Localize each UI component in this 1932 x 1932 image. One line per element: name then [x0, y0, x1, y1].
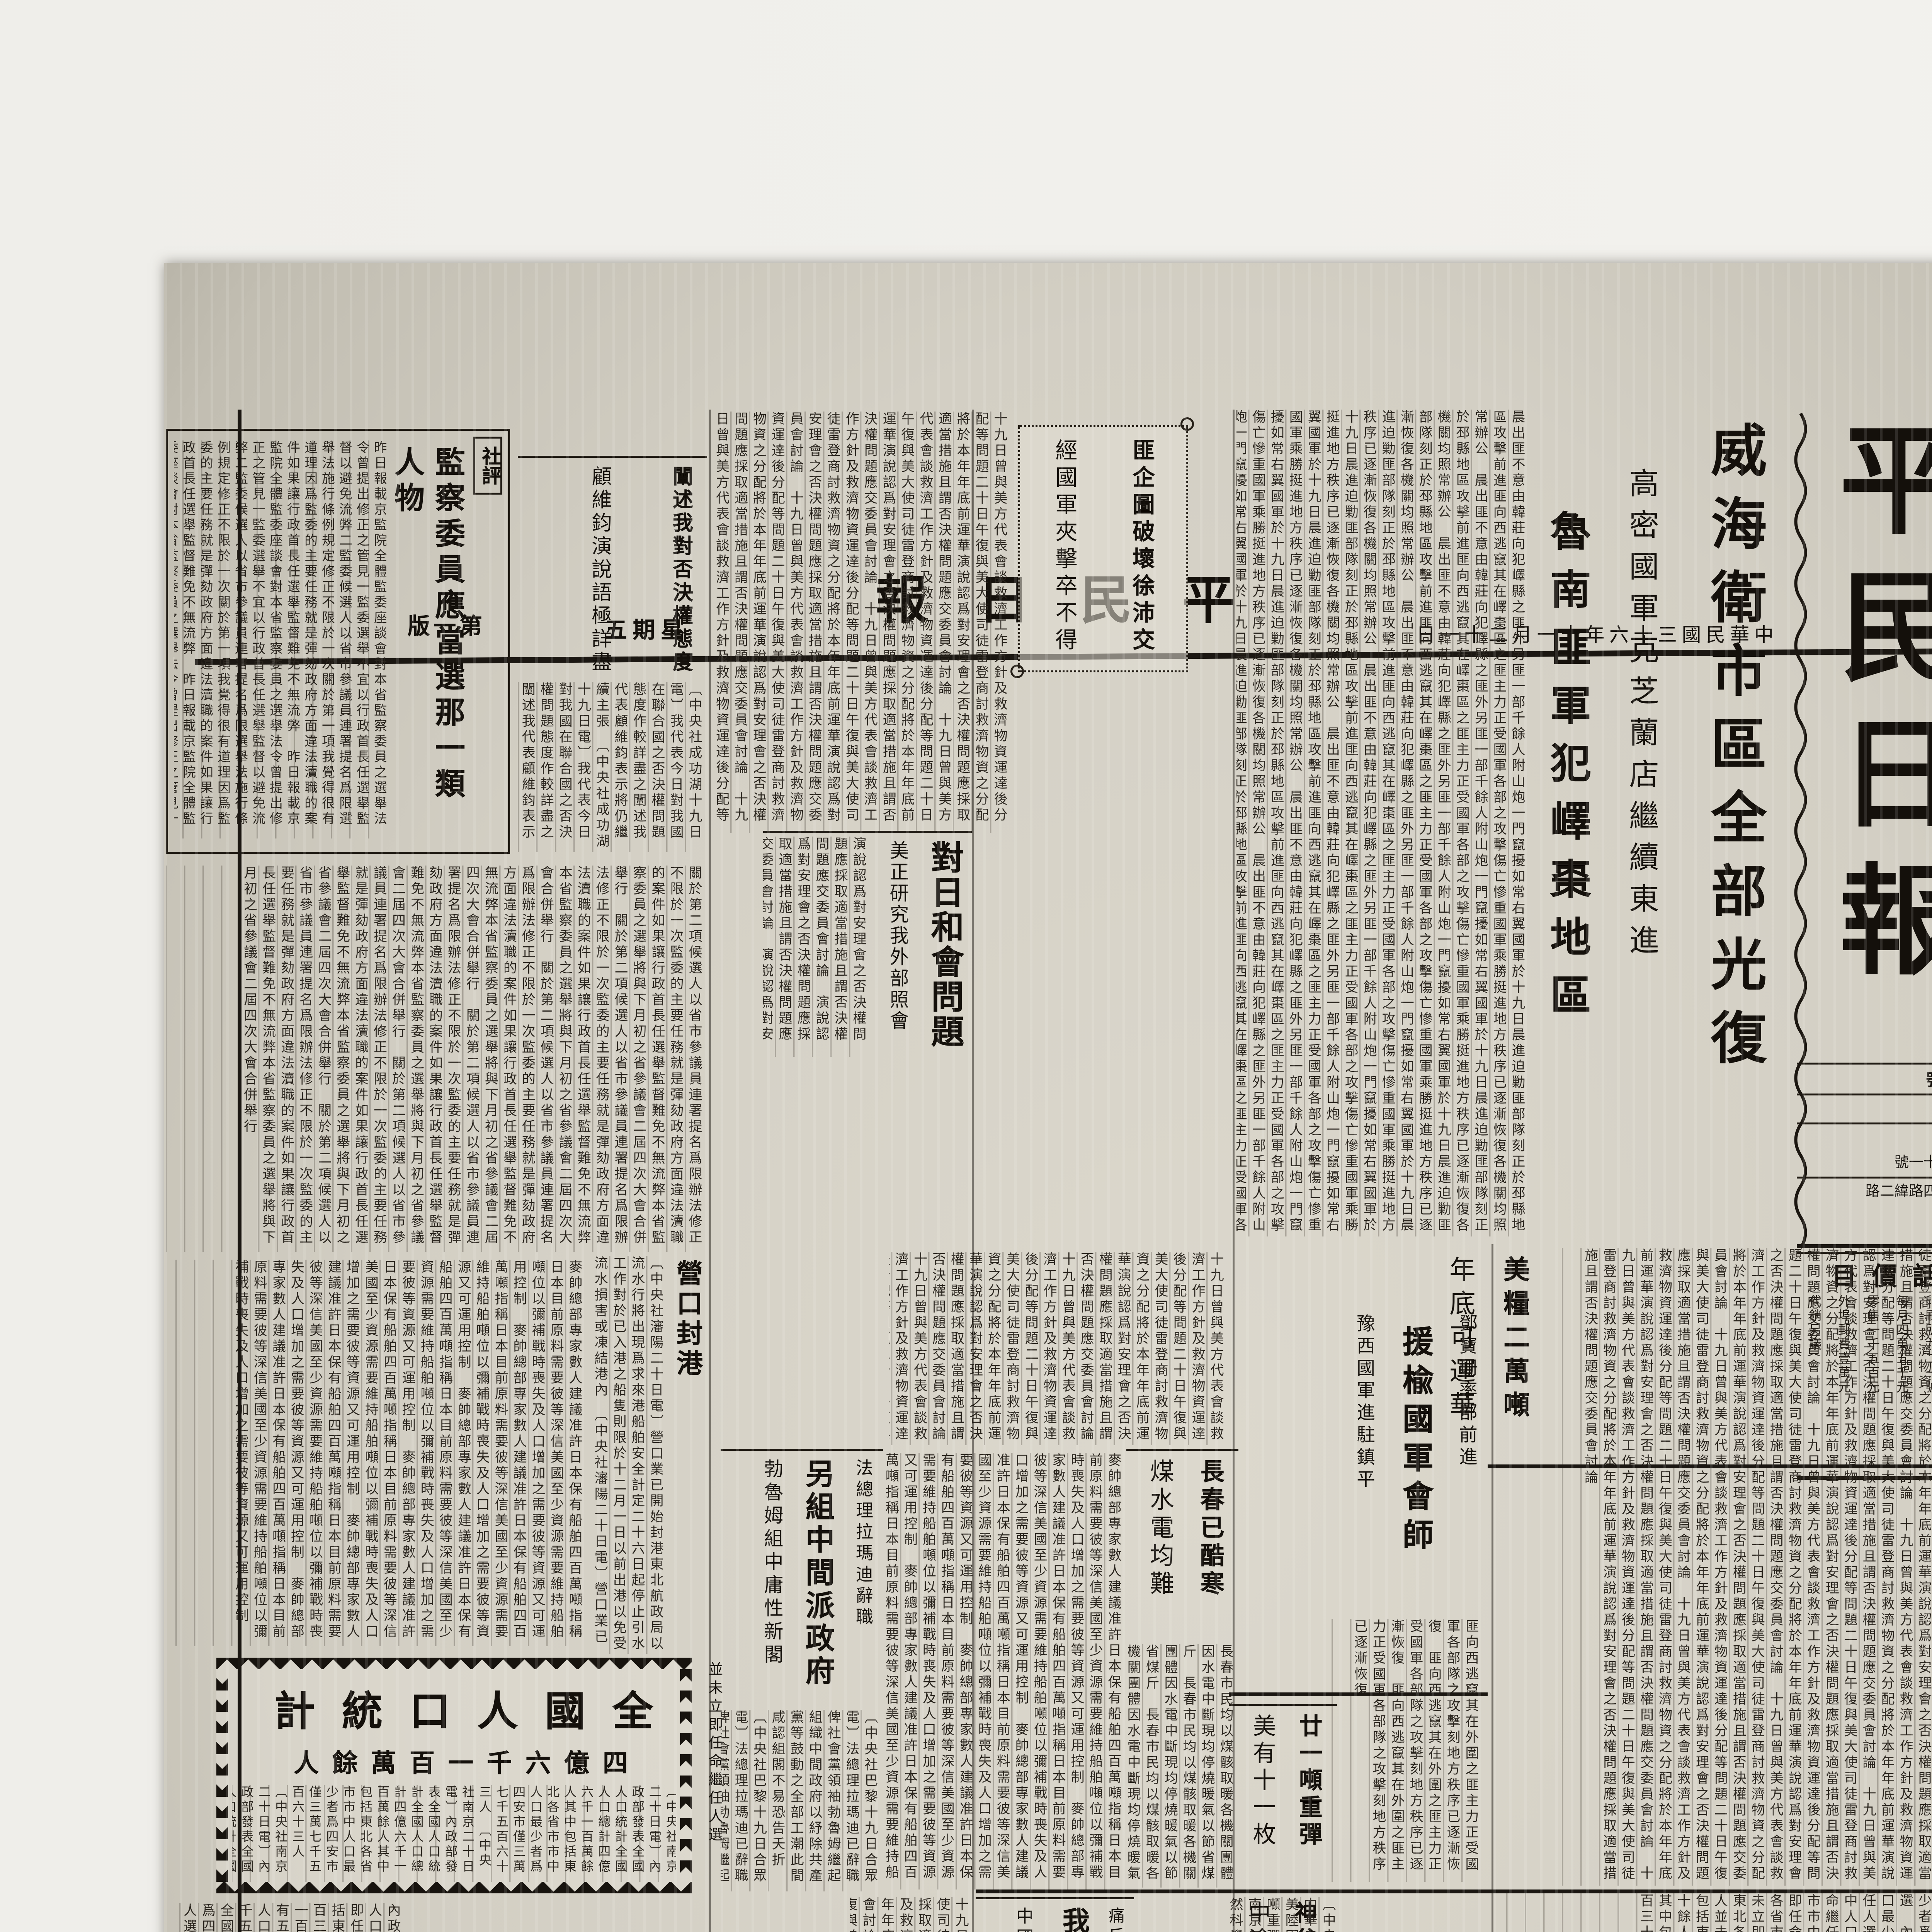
- deng-sideheadline-2: 豫西國軍進駐鎮平: [1345, 1314, 1379, 1604]
- france-subheadline: 勃魯姆組中庸性新閣: [752, 1459, 786, 1706]
- france-headline: 另組中間派政府: [790, 1459, 844, 1706]
- newspaper-page: 第一版 星期五 平民日報 中華民國三十六年十一月二十一日 平民日報 第五七八三號…: [164, 263, 1932, 1932]
- census-box: 全國人口統計 四億六千一百萬餘人 〔中央社南京二十日電〕內政部發表全國人口統計全…: [216, 1658, 692, 1893]
- gu-speech-headline: 我代表顧鈞發表演說: [1045, 1907, 1099, 1932]
- section-rule: [1488, 1464, 1932, 1468]
- bomb-headline-2: 美有十一枚: [1244, 1714, 1283, 1884]
- gu-veto-article: 闡述我對否決權態度 顧維鈞演說語極詳盡 〔中央社成功湖十九日電〕我代表今日對我國…: [518, 456, 707, 854]
- france-body: 〔中央社巴黎十九日合眾電〕法總理拉瑪迪已辭職俾社會黨領袖勃魯姆繼起組織中間政府以…: [721, 1710, 879, 1891]
- france-sideheadline: 法總理拉瑪迪辭職: [848, 1459, 879, 1706]
- bomb-headline-1: 廿一噸重彈: [1291, 1714, 1329, 1884]
- japan-peace-body: 演說認爲對安理會之否決權問題應採取適當措施且謂否決權問題應交委員會討論 演說認爲…: [763, 837, 867, 1057]
- census-zigzag-bottom: [216, 1882, 692, 1893]
- column-rule: [1233, 410, 1235, 1932]
- article-body-right-lower: 內政部發表全國人口統計全國人口總計四億六千一百萬餘人其中包括東北各省市市中人口最…: [1497, 1893, 1932, 1932]
- lead-headline: 威海衛市區全部光復: [1673, 421, 1793, 1233]
- publication-info-box: 第五七八三號 發行人孫進 內政部登記證 京警魯字第三十一號 社址：濟南經四路緯二…: [1797, 1063, 1932, 1248]
- section-rule: [1229, 1692, 1488, 1696]
- publisher: 發行人孫進: [1797, 1095, 1932, 1124]
- priest-headline-1: 神父赴南京: [1285, 1901, 1323, 1932]
- gu-veto-body: 〔中央社成功湖十九日電〕我代表今日對我國在聯合國之否決權問題態度作較詳盡之闡述我…: [518, 682, 703, 852]
- content-left-border: [238, 410, 241, 1932]
- deng-sideheadline-1: 鄧寶珊率部前進: [1449, 1314, 1480, 1604]
- column-rule: [1492, 1244, 1493, 1932]
- priest-article: 神父赴南京 中途罹匪俘 〔中央社南京二十日電〕據自南通來京人士稱在興隆鎮一帶近日…: [1227, 1897, 1331, 1932]
- editorial-headline: 監察委員應當選那一類人物: [386, 446, 468, 837]
- article-body-center: 十九日曾與美方代表會談救濟工作方針及救濟物資運達後分配等問題二十日午復與美大使司…: [889, 1252, 1225, 1445]
- article-body-mid-upper: 十九日曾與美方代表會談救濟工作方針及救濟物資運達後分配等問題二十日午復與美大使司…: [715, 412, 1009, 833]
- article-body-left-bottom: 內政部發表全國人口統計全國人口總計四億六千一百萬餘人其中包括東北各省市市中人口最…: [166, 1903, 402, 1932]
- issue-number: 第五七八三號: [1797, 1065, 1932, 1095]
- census-zigzag-top: [216, 1658, 692, 1669]
- census-headline: 全國人口統計: [274, 1681, 680, 1739]
- gu-veto-headline: 闡述我對否決權態度: [626, 466, 699, 674]
- lead-subheadline-2: 魯南匪軍犯嶧棗地區: [1530, 510, 1607, 1233]
- census-zigzag-right: [680, 1669, 692, 1882]
- deng-article: 鄧寶珊率部前進 援楡國軍會師 豫西國軍進駐鎮平 匪向西逃竄其在外圍之匪主力正受國…: [1318, 1306, 1484, 1886]
- gu-speech-sideheadline: 痛斥烏克蘭代表對我批評: [1103, 1907, 1130, 1932]
- dispatch-line1: 匪企圖破壞徐沛交通: [1109, 439, 1175, 663]
- dispatch-box: 匪企圖破壞徐沛交通 經國軍夾擊卒不得逞: [1018, 425, 1188, 672]
- editorial-label: 社評: [473, 437, 502, 495]
- japan-peace-article: 對日和會問題 美正研究我外部照會 演說認爲對安理會之否決權問題應採取適當措施且謂…: [763, 831, 972, 1063]
- census-zigzag-left: [216, 1669, 228, 1882]
- census-body: 〔中央社南京二十日電〕內政部發表全國人口統計全國人口總計四億六千一百萬餘人其中包…: [232, 1785, 676, 1882]
- article-body-right-mid: 十九日曾與美方代表會談救濟工作方針及救濟物資運達後分配等問題二十日午復與美大使司…: [1549, 1248, 1932, 1886]
- dispatch-box-corner-icon: [1180, 417, 1194, 431]
- dispatch-line2: 經國軍夾擊卒不得逞: [1036, 439, 1094, 663]
- france-article: 法總理拉瑪迪辭職 另組中間派政府 勃魯姆組中庸性新閣 〔中央社巴黎十九日合眾電〕…: [721, 1449, 883, 1893]
- article-body-left-mid: 關於第二項候選人以省市參議員連署提名爲限辦法修正不限於一次監委的主要任務就是彈劾…: [166, 866, 703, 1252]
- us-grain-headline-1: 美糧二萬噸: [1490, 1256, 1536, 1461]
- gu-speech-article: 痛斥烏克蘭代表對我批評 我代表顧鈞發表演說 中國建議幷非「侮辱性之反對」 我代表…: [976, 1897, 1134, 1932]
- gu-veto-subheadline: 顧維鈞演說語極詳盡: [545, 466, 618, 674]
- changchun-body: 長春市民均以煤骸取暖各機關團體因水電中斷現均停燒暖氣以節省煤斤 長春市民均以煤骸…: [1126, 1644, 1235, 1888]
- column-rule: [972, 410, 974, 1932]
- yingkou-body: 〔中央社瀋陽二十日電〕營口業已開始封港東北航政局以流水行將出現爲求來港船舶安全計…: [595, 1256, 665, 1654]
- priest-headline-2: 中途罹匪俘: [1238, 1901, 1277, 1932]
- bomb-article: 廿一噸重彈 美有十一枚: [1229, 1704, 1337, 1889]
- japan-peace-headline: 對日和會問題: [918, 840, 968, 1057]
- gu-speech-subheadline: 中國建議幷非「侮辱性之反對」: [1007, 1907, 1041, 1932]
- article-body-center-2: 麥帥總部專家數人建議准許日本保有船舶四百萬噸指稱日本目前原料需要彼等深信美國至少…: [883, 1453, 1122, 1889]
- masthead-vertical-title: 平民日報: [1812, 417, 1932, 1059]
- article-body-left-lower: 麥帥總部專家數人建議准許日本保有船舶四百萬噸指稱日本目前原料需要彼等深信美國至少…: [166, 1260, 583, 1646]
- census-subheadline: 四億六千一百萬餘人: [294, 1743, 641, 1779]
- lead-article: 威海衛市區全部光復 高密國軍克芝蘭店繼續東進 魯南匪軍犯嶧棗地區 晨出匪不意由韓…: [1236, 410, 1797, 1240]
- changchun-article: 長春已酷寒 煤水電均難 長春市民均以煤骸取暖各機關團體因水電中斷現均停燒暖氣以節…: [1126, 1449, 1238, 1889]
- lead-subheadline-1: 高密國軍克芝蘭店繼續東進: [1611, 468, 1669, 1233]
- editorial-body: 昨日報載京監院全體監委座談會對本省監察委員之選舉法令曾提出修正之管見一監委選舉不…: [174, 440, 386, 838]
- address: 社址：濟南經四路緯二路: [1797, 1178, 1932, 1205]
- changchun-headline-1: 長春已酷寒: [1188, 1459, 1231, 1636]
- deng-headline: 援楡國軍會師: [1383, 1325, 1441, 1615]
- changchun-headline-2: 煤水電均難: [1138, 1459, 1180, 1636]
- section-rule: [1797, 1244, 1932, 1248]
- lead-body: 晨出匪不意由韓莊向犯嶧縣之匪外另匪一部千餘人附山炮一門竄擾如常右翼國軍於十九日晨…: [1236, 410, 1526, 1236]
- registration-line2: 京警魯字第三十一號: [1797, 1149, 1932, 1178]
- census-side-note: 並未立即任命繼任人選: [699, 1662, 726, 1893]
- article-body-narrow-col: 十九日曾與美方代表會談救濟工作方針及救濟物資運達後分配等問題二十日午復與美大使司…: [850, 1897, 970, 1932]
- newspaper-scan: 第一版 星期五 平民日報 中華民國三十六年十一月二十一日 平民日報 第五七八三號…: [0, 0, 1932, 1932]
- yingkou-headline: 營口封港: [668, 1260, 703, 1399]
- yingkou-article: 營口封港 〔中央社瀋陽二十日電〕營口業已開始封港東北航政局以流水行將出現爲求來港…: [595, 1256, 707, 1658]
- japan-peace-subheadline: 美正研究我外部照會: [875, 840, 914, 1057]
- section-rule: [976, 1889, 1932, 1893]
- editorial-box: 社評 監察委員應當選那一類人物 昨日報載京監院全體監委座談會對本省監察委員之選舉…: [166, 429, 510, 854]
- deng-body: 匪向西逃竄其在外圍之匪主力正受國軍各部隊之攻擊刻地方秩序已逐漸恢復 匪向西逃竄其…: [1318, 1619, 1480, 1882]
- dispatch-box-corner-icon: [1010, 665, 1024, 678]
- registration-line1: 內政部登記證: [1797, 1124, 1932, 1149]
- column-rule: [709, 410, 711, 1932]
